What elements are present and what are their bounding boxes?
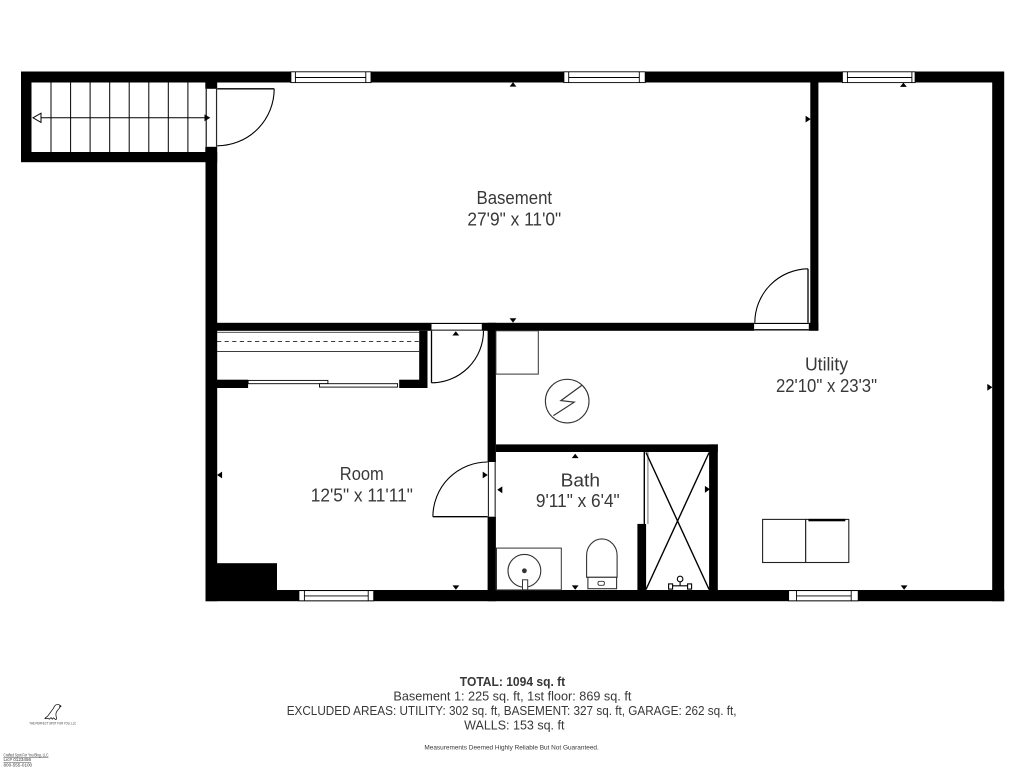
svg-text:Utility: Utility [805,354,849,375]
svg-text:800-555-0100: 800-555-0100 [4,763,33,768]
svg-text:Room: Room [340,463,384,484]
svg-text:Lic# 0123456: Lic# 0123456 [4,757,32,762]
svg-text:Basement: Basement [477,187,553,208]
svg-text:THE PERFECT SPOT FOR YOU, LLC: THE PERFECT SPOT FOR YOU, LLC [29,722,76,726]
svg-text:Measurements Deemed Highly Rel: Measurements Deemed Highly Reliable But … [424,744,599,751]
svg-text:12'5" x 11'11": 12'5" x 11'11" [311,485,413,506]
svg-text:EXCLUDED AREAS: UTILITY: 302 s: EXCLUDED AREAS: UTILITY: 302 sq. ft, BAS… [287,703,737,718]
svg-text:27'9" x 11'0": 27'9" x 11'0" [467,209,561,230]
svg-text:Basement 1: 225 sq. ft, 1st fl: Basement 1: 225 sq. ft, 1st floor: 869 s… [393,688,631,703]
svg-text:9'11" x 6'4": 9'11" x 6'4" [536,490,620,511]
svg-text:WALLS: 153 sq. ft: WALLS: 153 sq. ft [464,718,565,733]
svg-text:22'10" x 23'3": 22'10" x 23'3" [776,375,877,396]
svg-text:Bath: Bath [561,470,600,491]
svg-text:TOTAL: 1094 sq. ft: TOTAL: 1094 sq. ft [460,674,566,689]
